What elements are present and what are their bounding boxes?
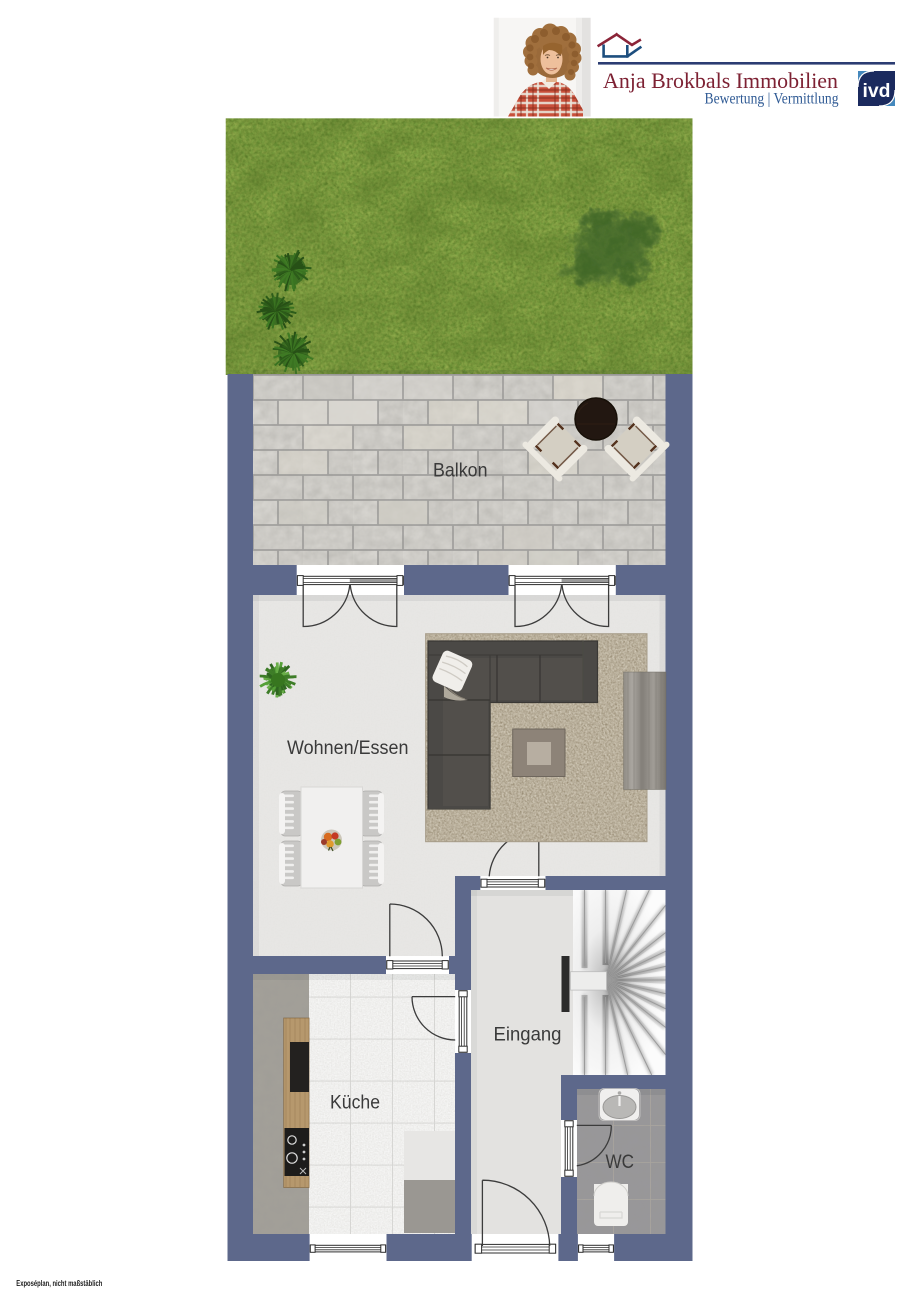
svg-text:Balkon: Balkon xyxy=(433,460,488,482)
svg-text:Anja Brokbals Immobilien: Anja Brokbals Immobilien xyxy=(603,68,838,93)
svg-text:Wohnen/Essen: Wohnen/Essen xyxy=(287,737,409,759)
svg-text:WC: WC xyxy=(606,1151,635,1173)
svg-text:Küche: Küche xyxy=(330,1092,380,1114)
svg-text:Exposéplan, nicht maßstäblich: Exposéplan, nicht maßstäblich xyxy=(16,1279,102,1288)
svg-text:Bewertung | Vermittlung: Bewertung | Vermittlung xyxy=(705,90,839,107)
svg-text:Eingang: Eingang xyxy=(494,1024,562,1046)
svg-text:ivd: ivd xyxy=(863,80,891,102)
